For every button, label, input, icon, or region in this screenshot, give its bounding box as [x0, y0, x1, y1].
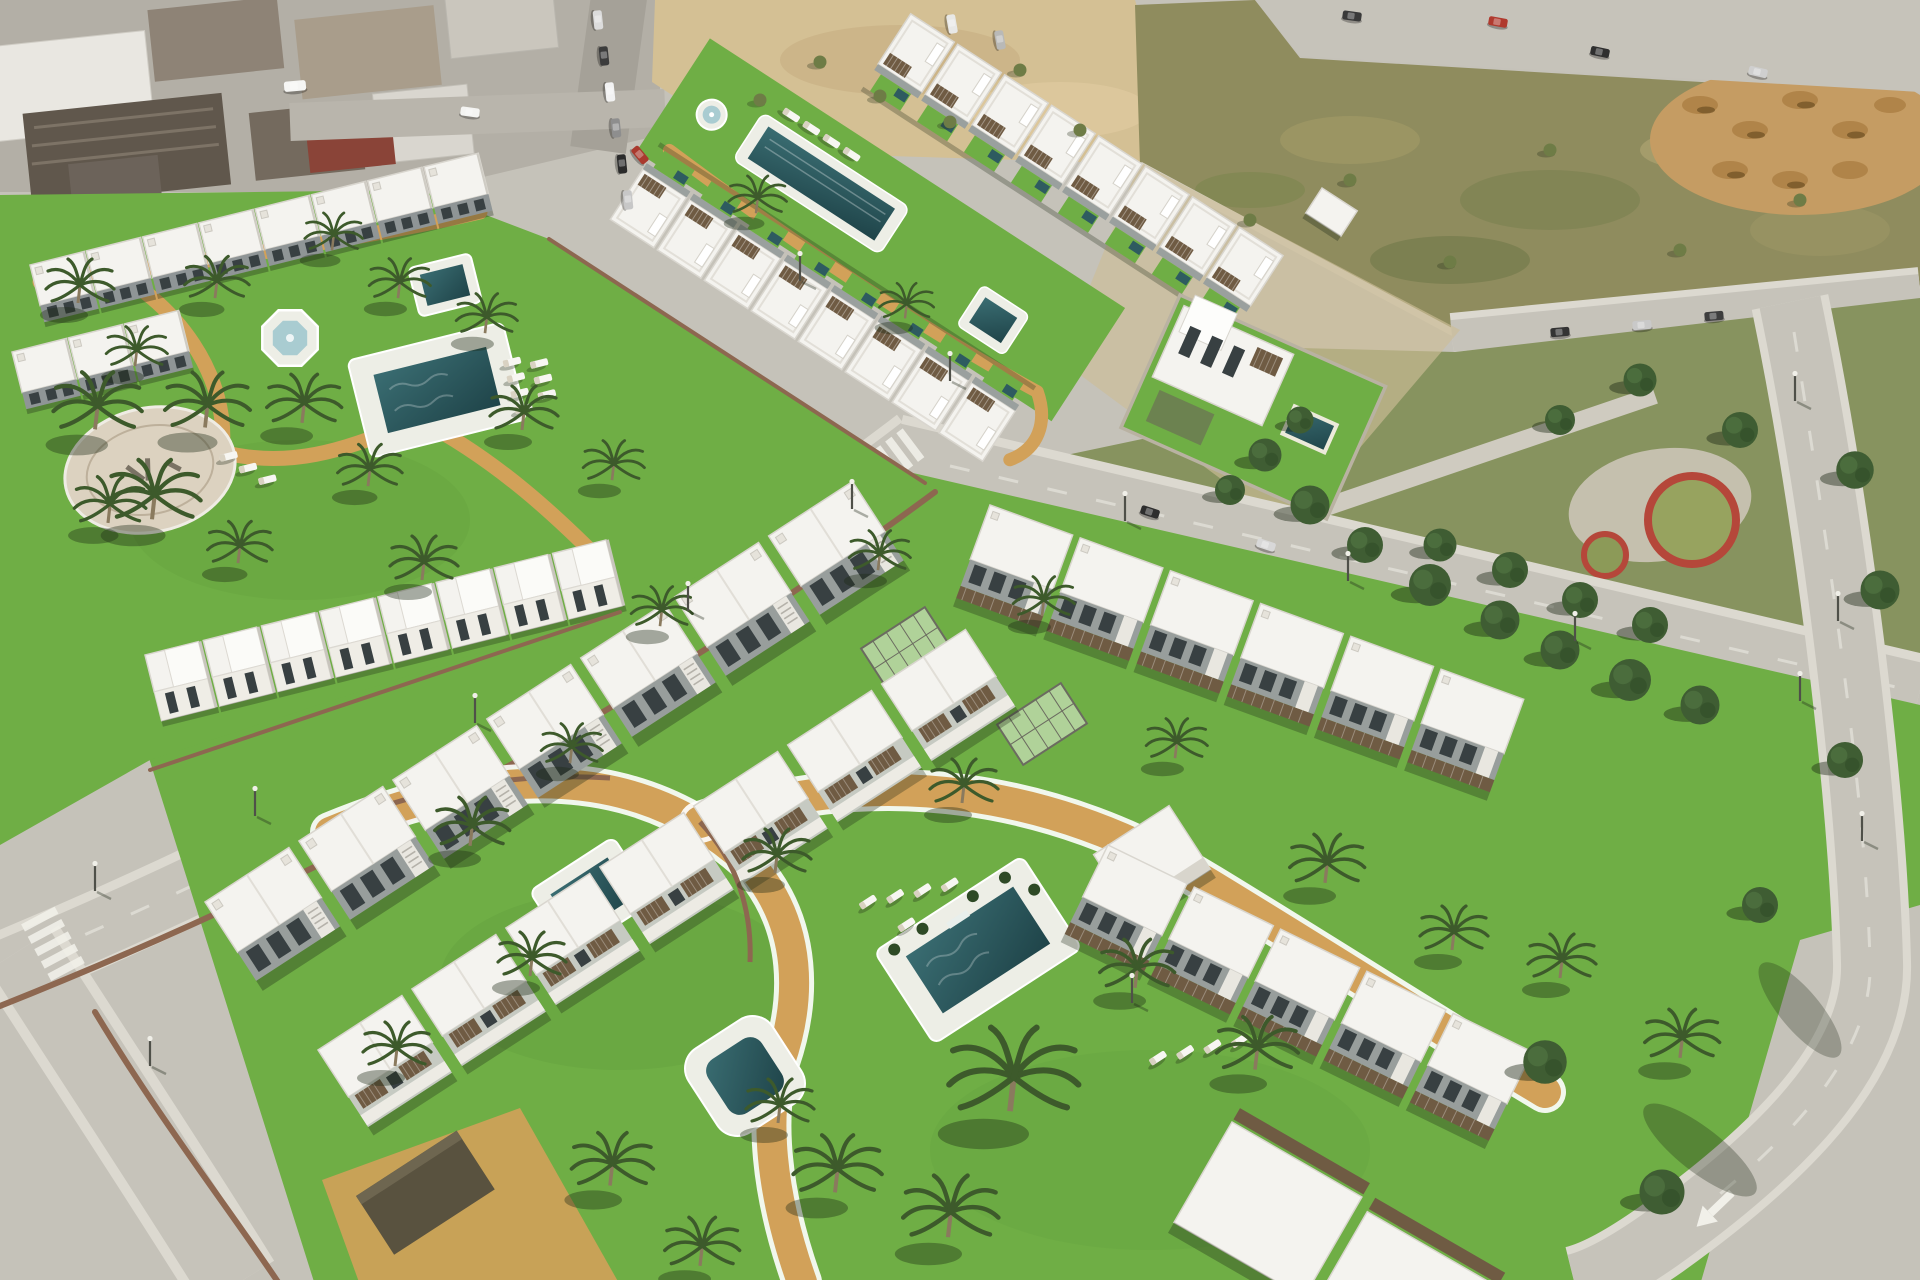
playground-ring-large — [1648, 476, 1736, 564]
playground-ring-small — [1584, 534, 1626, 576]
aerial-render-stage — [0, 0, 1920, 1280]
octagon-fountain — [262, 310, 317, 365]
aerial-render — [0, 0, 1920, 1280]
